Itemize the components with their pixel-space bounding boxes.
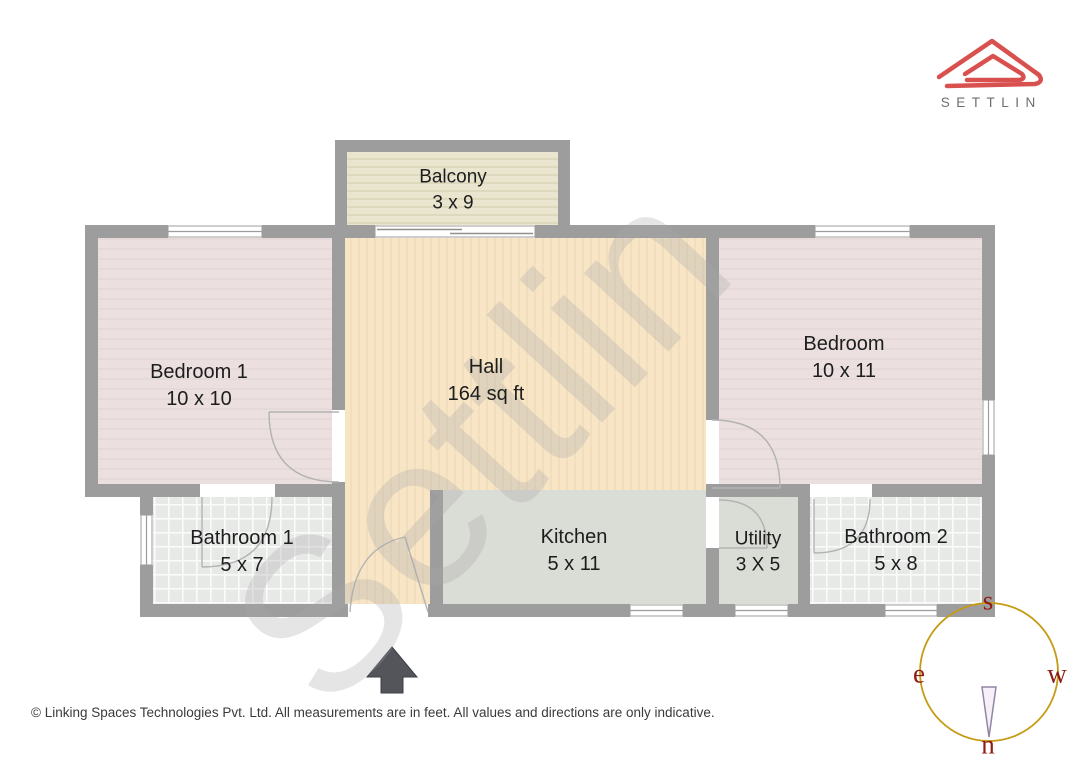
room-label-hall: Hall 164 sq ft <box>448 354 525 408</box>
room-label-kitchen: Kitchen 5 x 11 <box>541 524 608 578</box>
room-dims: 3 x 9 <box>419 190 487 216</box>
room-name: Bedroom <box>803 331 884 358</box>
room-name: Kitchen <box>541 524 608 551</box>
sliding-door-balcony <box>375 226 535 237</box>
room-label-bedroom1: Bedroom 1 10 x 10 <box>150 359 248 413</box>
room-label-utility: Utility 3 X 5 <box>735 526 781 577</box>
room-dims: 5 x 7 <box>190 552 293 579</box>
floorplan-page: Settlin Balcony 3 x 9 Bedroom 1 10 x 10 … <box>0 0 1080 764</box>
room-label-balcony: Balcony 3 x 9 <box>419 164 487 215</box>
room-name: Balcony <box>419 164 487 190</box>
compass-east-label: e <box>913 659 925 690</box>
copyright-note: © Linking Spaces Technologies Pvt. Ltd. … <box>31 705 715 720</box>
room-name: Hall <box>448 354 525 381</box>
compass-rose <box>920 603 1058 741</box>
entrance-arrow-icon <box>367 647 417 693</box>
room-name: Bedroom 1 <box>150 359 248 386</box>
room-label-bedroom2: Bedroom 10 x 11 <box>803 331 884 385</box>
room-dims: 10 x 11 <box>803 358 884 385</box>
compass-south-label: s <box>983 586 994 617</box>
room-dims: 5 x 11 <box>541 551 608 578</box>
room-name: Bathroom 1 <box>190 525 293 552</box>
room-dims: 3 X 5 <box>735 552 781 578</box>
room-name: Utility <box>735 526 781 552</box>
compass-west-label: w <box>1047 659 1067 690</box>
room-name: Bathroom 2 <box>844 524 947 551</box>
brand-name: SETTLIN <box>888 95 1080 110</box>
room-dims: 10 x 10 <box>150 386 248 413</box>
room-label-bathroom1: Bathroom 1 5 x 7 <box>190 525 293 579</box>
room-label-bathroom2: Bathroom 2 5 x 8 <box>844 524 947 578</box>
settlin-roof-logo-icon <box>939 41 1041 86</box>
compass-north-label: n <box>981 730 995 761</box>
room-dims: 5 x 8 <box>844 551 947 578</box>
room-dims: 164 sq ft <box>448 381 525 408</box>
